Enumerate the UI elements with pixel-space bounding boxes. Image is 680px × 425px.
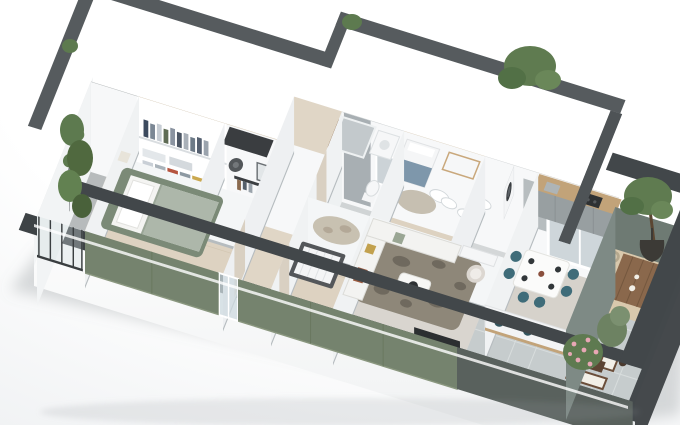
floorplan-render-stage	[0, 0, 680, 425]
tree-behind-kitchen	[498, 46, 561, 90]
glass-door-gap	[219, 273, 238, 321]
floorplan-3d-scene	[0, 0, 680, 425]
rose-bush	[563, 334, 603, 370]
front-contact-shadow	[40, 398, 640, 425]
